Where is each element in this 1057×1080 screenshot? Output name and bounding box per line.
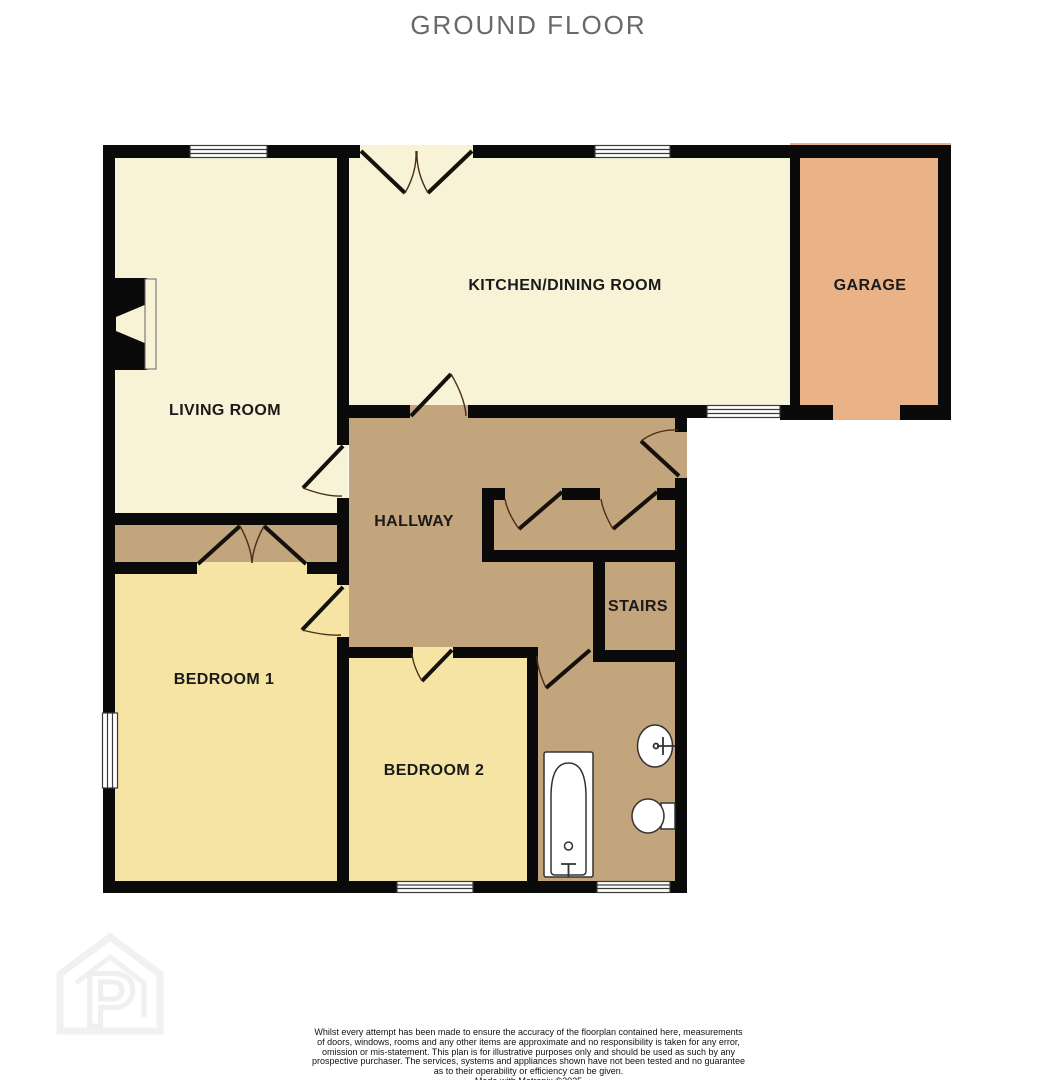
wall-segment <box>103 562 197 574</box>
wall-segment <box>103 145 115 713</box>
wall-segment <box>675 478 687 893</box>
wall-segment <box>337 637 349 893</box>
disclaimer: Whilst every attempt has been made to en… <box>0 1028 1057 1080</box>
floorplan-page: GROUND FLOOR P <box>0 0 1057 1080</box>
wall-segment <box>900 405 951 420</box>
kitchen-label: KITCHEN/DINING ROOM <box>468 277 661 294</box>
wall-segment <box>482 550 687 562</box>
garage-label: GARAGE <box>834 277 907 294</box>
wall-segment <box>103 145 190 158</box>
window <box>707 406 780 418</box>
floorplan-drawing: P <box>0 0 1057 1080</box>
wall-segment <box>103 788 115 893</box>
wall-segment <box>103 881 397 893</box>
wall-segment <box>657 488 687 500</box>
wall-segment <box>790 145 800 420</box>
wall-segment <box>307 562 349 574</box>
wall-segment <box>593 550 605 662</box>
wall-segment <box>337 647 413 658</box>
wall-segment <box>593 650 687 662</box>
wall-segment <box>670 881 687 893</box>
window <box>190 146 267 158</box>
wall-segment <box>675 405 687 432</box>
wall-segment <box>103 513 349 525</box>
hearth <box>145 279 156 369</box>
wall-segment <box>780 405 833 420</box>
wall-segment <box>562 488 600 500</box>
room-bedroom1 <box>103 562 349 893</box>
bedroom1-label: BEDROOM 1 <box>174 671 275 688</box>
stairs-label: STAIRS <box>608 598 668 615</box>
window <box>595 146 670 158</box>
toilet <box>632 799 675 833</box>
wall-segment <box>473 145 595 158</box>
toilet-bowl <box>632 799 664 833</box>
hallway-label: HALLWAY <box>374 513 454 530</box>
window <box>103 713 118 788</box>
wall-segment <box>468 405 707 418</box>
wall-segment <box>473 881 597 893</box>
wall-segment <box>527 658 538 881</box>
wall-segment <box>453 647 538 658</box>
wall-segment <box>670 145 951 158</box>
bathtub-drain <box>565 842 573 850</box>
window <box>397 882 473 893</box>
window <box>597 882 670 893</box>
bedroom2-label: BEDROOM 2 <box>384 762 485 779</box>
living-room-label: LIVING ROOM <box>169 402 281 419</box>
bathtub <box>544 752 593 877</box>
wall-segment <box>337 145 349 445</box>
wall-segment <box>938 145 951 420</box>
